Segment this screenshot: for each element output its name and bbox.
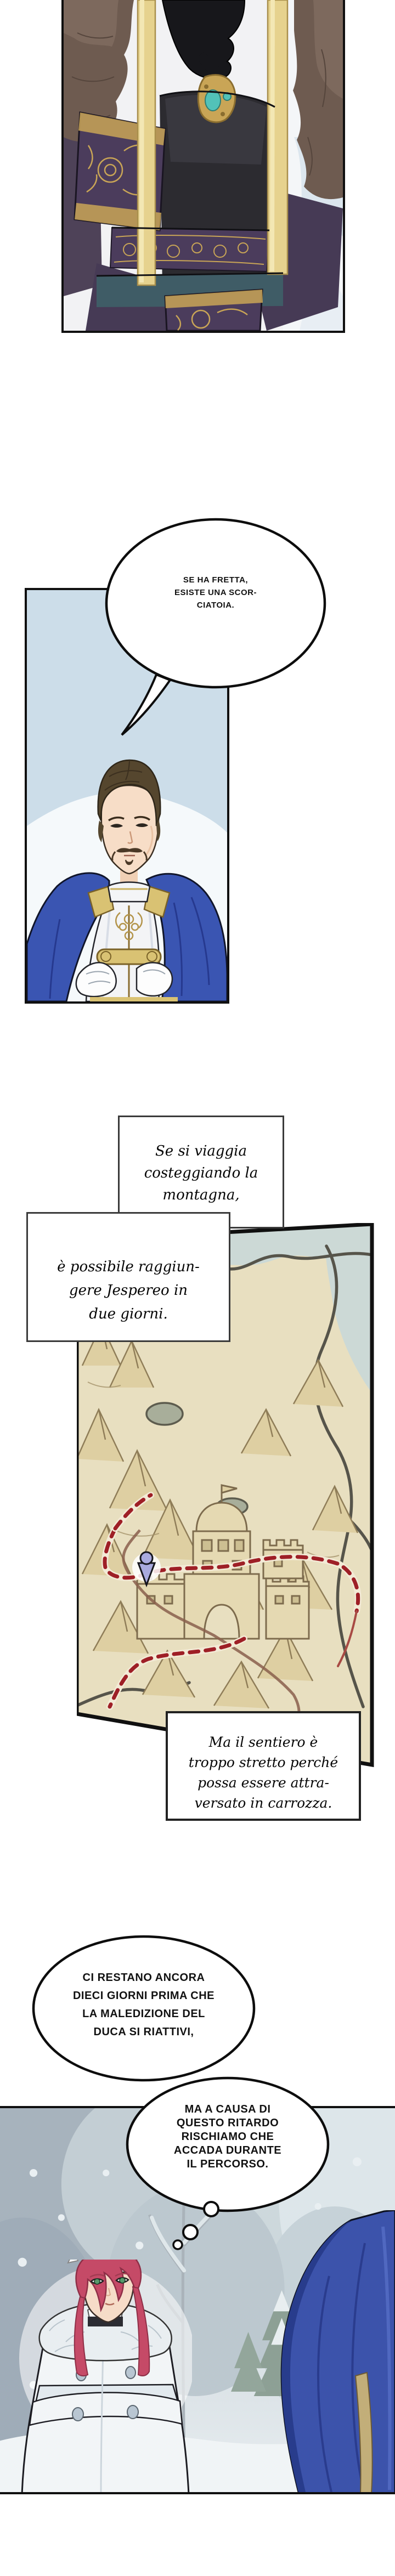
speech-line: CIATOIA. xyxy=(133,599,298,612)
panel-closeup-pendant xyxy=(61,0,345,333)
thought-line: DIECI GIORNI PRIMA CHE xyxy=(61,1987,226,2005)
thought-line: QUESTO RITARDO xyxy=(145,2116,310,2130)
comic-page: SE HA FRETTA, ESISTE UNA SCOR- CIATOIA. xyxy=(0,0,395,2576)
caption-line: costeggiando la xyxy=(120,1162,283,1184)
caption-line: versato in carrozza. xyxy=(168,1793,359,1813)
caption-line: Se si viaggia xyxy=(120,1140,283,1162)
caption-box-2: è possibile raggiun- gere Jespereo in du… xyxy=(26,1212,230,1342)
caption-line: due giorni. xyxy=(28,1303,229,1326)
thought-line: IL PERCORSO. xyxy=(145,2158,310,2171)
thought-bubble-1-text: CI RESTANO ANCORA DIECI GIORNI PRIMA CHE… xyxy=(61,1969,226,2041)
speech-bubble-text: SE HA FRETTA, ESISTE UNA SCOR- CIATOIA. xyxy=(133,574,298,612)
thought-line: ACCADA DURANTE xyxy=(145,2144,310,2158)
thought-line: RISCHIAMO CHE xyxy=(145,2130,310,2144)
speech-line: ESISTE UNA SCOR- xyxy=(133,586,298,599)
caption-line: gere Jespereo in xyxy=(28,1279,229,1303)
thought-line: DUCA SI RIATTIVI, xyxy=(61,2023,226,2041)
panel-closeup-art xyxy=(64,0,343,331)
thought-line: MA A CAUSA DI xyxy=(145,2103,310,2116)
panel-border xyxy=(0,2492,395,2494)
caption-line: montagna, xyxy=(120,1184,283,1206)
speech-bubble xyxy=(93,516,335,746)
thought-line: LA MALEDIZIONE DEL xyxy=(61,2005,226,2023)
thought-bubble-2-text: MA A CAUSA DI QUESTO RITARDO RISCHIAMO C… xyxy=(145,2103,310,2171)
speech-line: SE HA FRETTA, xyxy=(133,574,298,586)
caption-line: è possibile raggiun- xyxy=(28,1255,229,1279)
caption-line: troppo stretto perché xyxy=(168,1752,359,1773)
caption-line: Ma il sentiero è xyxy=(168,1732,359,1752)
caption-box-3: Ma il sentiero è troppo stretto perché p… xyxy=(166,1711,361,1821)
woman-character xyxy=(11,2260,192,2494)
caption-line: possa essere attra- xyxy=(168,1773,359,1793)
thought-line: CI RESTANO ANCORA xyxy=(61,1969,226,1987)
